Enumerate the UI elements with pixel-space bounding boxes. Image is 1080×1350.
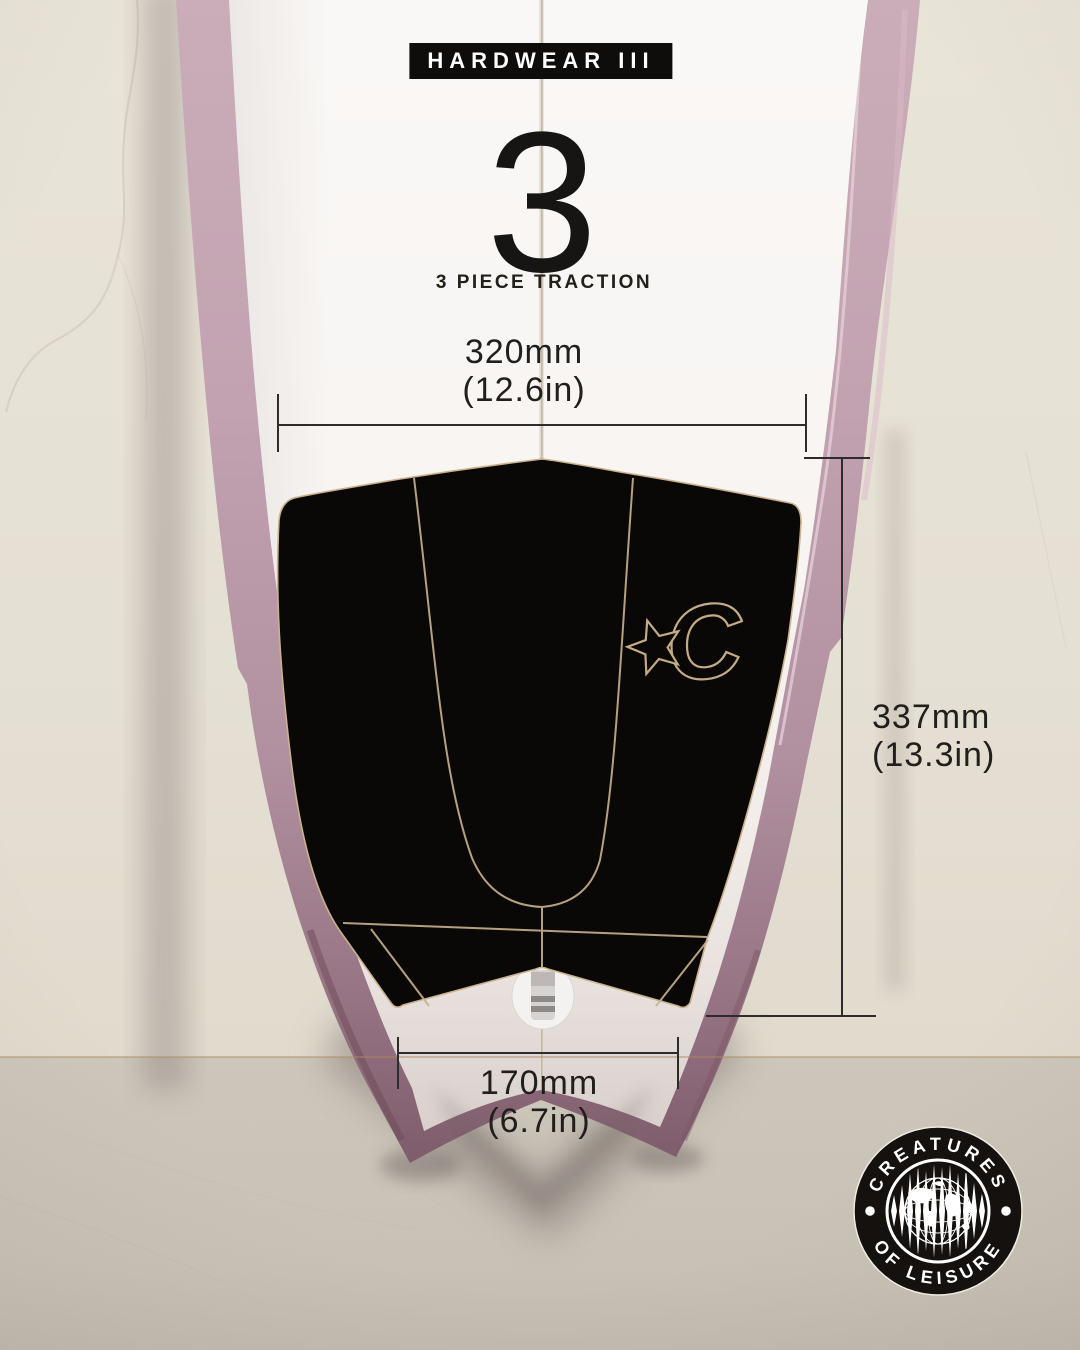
height-metric: 337mm <box>872 698 995 736</box>
width-metric: 320mm <box>462 333 585 371</box>
height-imperial: (13.3in) <box>872 736 995 774</box>
product-subtitle: 3 PIECE TRACTION <box>436 272 652 294</box>
width-dimension-label: 320mm (12.6in) <box>462 333 585 409</box>
height-dimension-label: 337mm (13.3in) <box>872 698 995 774</box>
logo-left-dot <box>865 1206 875 1216</box>
product-name-badge: HARDWEAR III <box>409 43 672 79</box>
pad-logo-letter: C <box>661 580 749 704</box>
tail-imperial: (6.7in) <box>480 1102 598 1140</box>
tail-metric: 170mm <box>480 1064 598 1102</box>
product-infographic: C <box>0 0 1080 1350</box>
creatures-of-leisure-logo: CREATURES OF LEISURE <box>854 1127 1022 1295</box>
width-imperial: (12.6in) <box>462 371 585 409</box>
logo-right-dot <box>1001 1206 1011 1216</box>
tail-dimension-label: 170mm (6.7in) <box>480 1064 598 1140</box>
